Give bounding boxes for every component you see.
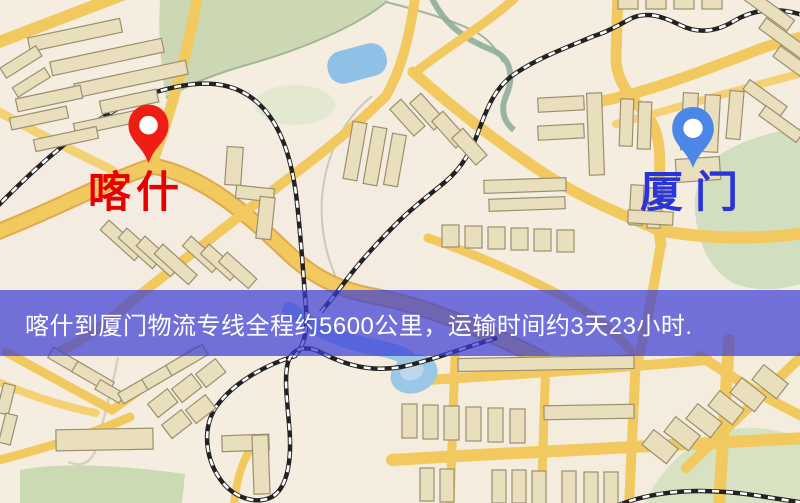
- map-canvas: [0, 0, 800, 503]
- map-screenshot: 喀什到厦门物流专线全程约5600公里，运输时间约3天23小时. 喀什 厦门: [0, 0, 800, 503]
- red-pin-icon[interactable]: [127, 103, 170, 165]
- blue-pin-icon[interactable]: [669, 106, 717, 169]
- xiamen-label: 厦门: [640, 172, 750, 215]
- banner-text: 喀什到厦门物流专线全程约5600公里，运输时间约3天23小时.: [0, 306, 693, 341]
- kashgar-label: 喀什: [88, 172, 184, 215]
- info-banner: 喀什到厦门物流专线全程约5600公里，运输时间约3天23小时.: [0, 290, 800, 356]
